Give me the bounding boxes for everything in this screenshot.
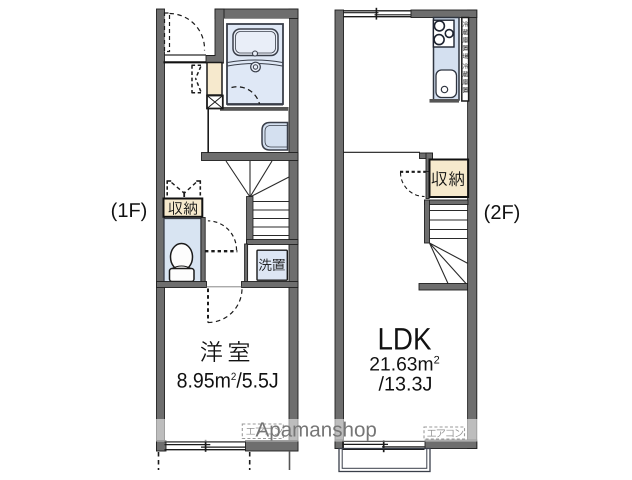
svg-text:(2F): (2F) bbox=[484, 202, 521, 224]
svg-text:LDK: LDK bbox=[378, 322, 432, 357]
svg-text:Apamanshop: Apamanshop bbox=[256, 418, 377, 441]
svg-text:8.95m2/5.5J: 8.95m2/5.5J bbox=[177, 370, 279, 393]
svg-text:(1F): (1F) bbox=[111, 200, 148, 222]
svg-text:21.63m2: 21.63m2 bbox=[369, 354, 439, 375]
svg-text:/13.3J: /13.3J bbox=[379, 373, 433, 395]
